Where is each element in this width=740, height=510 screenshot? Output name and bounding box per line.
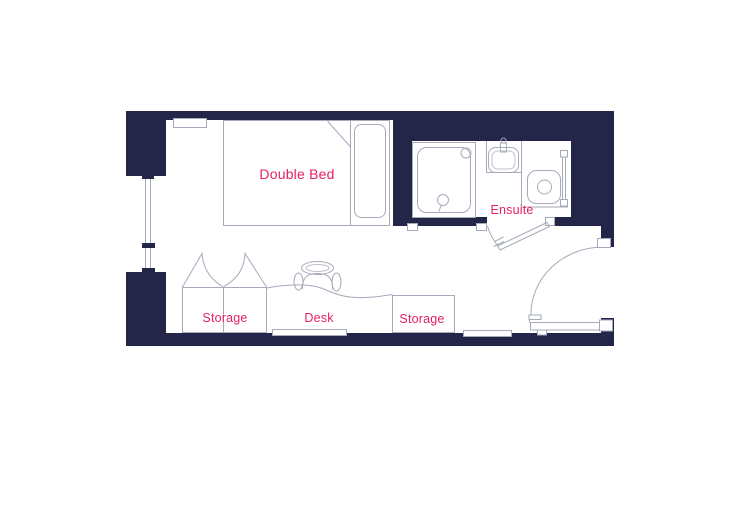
radiator-by-door <box>464 331 512 337</box>
storage-left-unit <box>183 288 267 333</box>
toilet-bowl <box>538 180 552 194</box>
desk <box>267 285 393 298</box>
label-storage-left: Storage <box>202 311 247 325</box>
shower <box>413 143 476 218</box>
label-desk: Desk <box>304 311 333 325</box>
window-mullion-bottom <box>142 268 155 273</box>
chair-backrest-inner <box>306 265 329 272</box>
ensuite-door-leaf <box>498 223 550 251</box>
towel-rail-icon <box>561 151 568 207</box>
chair-armrest-left <box>294 273 303 290</box>
entrance-door-leaf <box>531 323 607 331</box>
wardrobe-door-tent-right <box>224 254 267 288</box>
toilet <box>528 171 561 204</box>
desk-front-edge <box>267 285 393 298</box>
towel-rail-end-bottom <box>561 200 568 207</box>
shower-drain-stem <box>439 206 441 212</box>
ensuite-door-jamb-frame <box>408 224 418 231</box>
wall-top-bedroom <box>126 111 413 120</box>
entrance-door-jamb-bottom <box>600 320 613 331</box>
shower-tray-outline <box>413 143 476 218</box>
ensuite-door-swing-arc <box>488 226 498 246</box>
entrance-door-jamb-top <box>598 239 611 248</box>
floor-plan-drawing <box>0 0 740 510</box>
ensuite-door-jamb-left <box>477 224 487 231</box>
bed-sheet-fold <box>328 121 351 147</box>
ensuite-door-jamb-right <box>546 218 555 226</box>
wardrobe-door-tent-left <box>183 254 223 288</box>
wall-ensuite-separator <box>393 111 412 226</box>
toilet-outline <box>528 171 561 204</box>
towel-rail-bars <box>563 157 566 200</box>
wall-ensuite-bottom-left <box>412 217 487 226</box>
sink <box>489 138 519 173</box>
entrance-door-hinge-mark <box>538 330 547 335</box>
towel-rail-end-top <box>561 151 568 158</box>
wall-left-upper <box>126 111 166 176</box>
window-mullion-middle <box>142 243 155 248</box>
walls <box>126 111 614 346</box>
floor-plan: Double Bed Ensuite Storage Desk Storage <box>0 0 740 510</box>
chair-armrest-right <box>332 273 341 291</box>
bed-pillow <box>355 125 386 218</box>
window-mullion-top <box>142 172 154 179</box>
wall-ensuite-right-block <box>571 111 614 226</box>
entrance-door-handle <box>529 315 541 320</box>
radiator-under-desk <box>273 330 347 336</box>
entrance-door-swing-arc <box>531 247 603 315</box>
entrance-door <box>529 239 613 336</box>
label-ensuite: Ensuite <box>490 203 533 217</box>
shower-drain <box>438 195 449 206</box>
sink-bowl-inner <box>492 151 515 169</box>
label-storage-right: Storage <box>399 312 444 326</box>
shelf <box>174 119 207 128</box>
window <box>142 172 155 273</box>
label-double-bed: Double Bed <box>259 166 334 182</box>
